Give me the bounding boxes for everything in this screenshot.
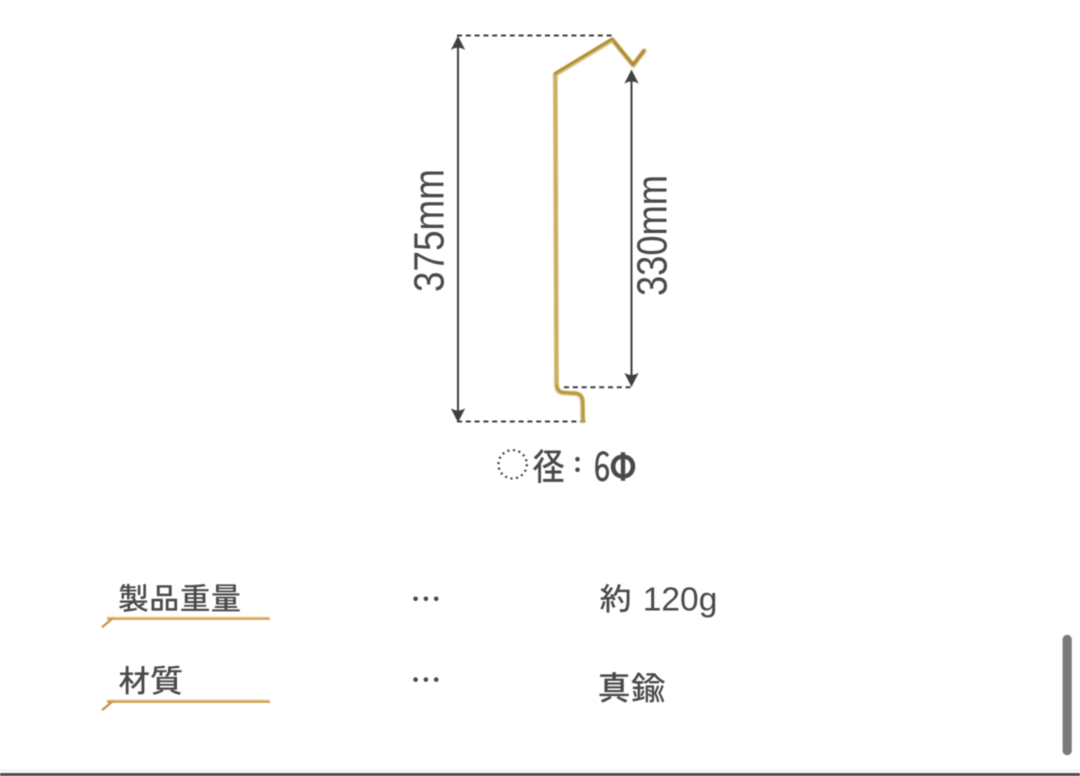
svg-text:120g: 120g [643,581,718,618]
svg-text:375mm: 375mm [407,169,454,292]
svg-text:330mm: 330mm [630,175,677,296]
